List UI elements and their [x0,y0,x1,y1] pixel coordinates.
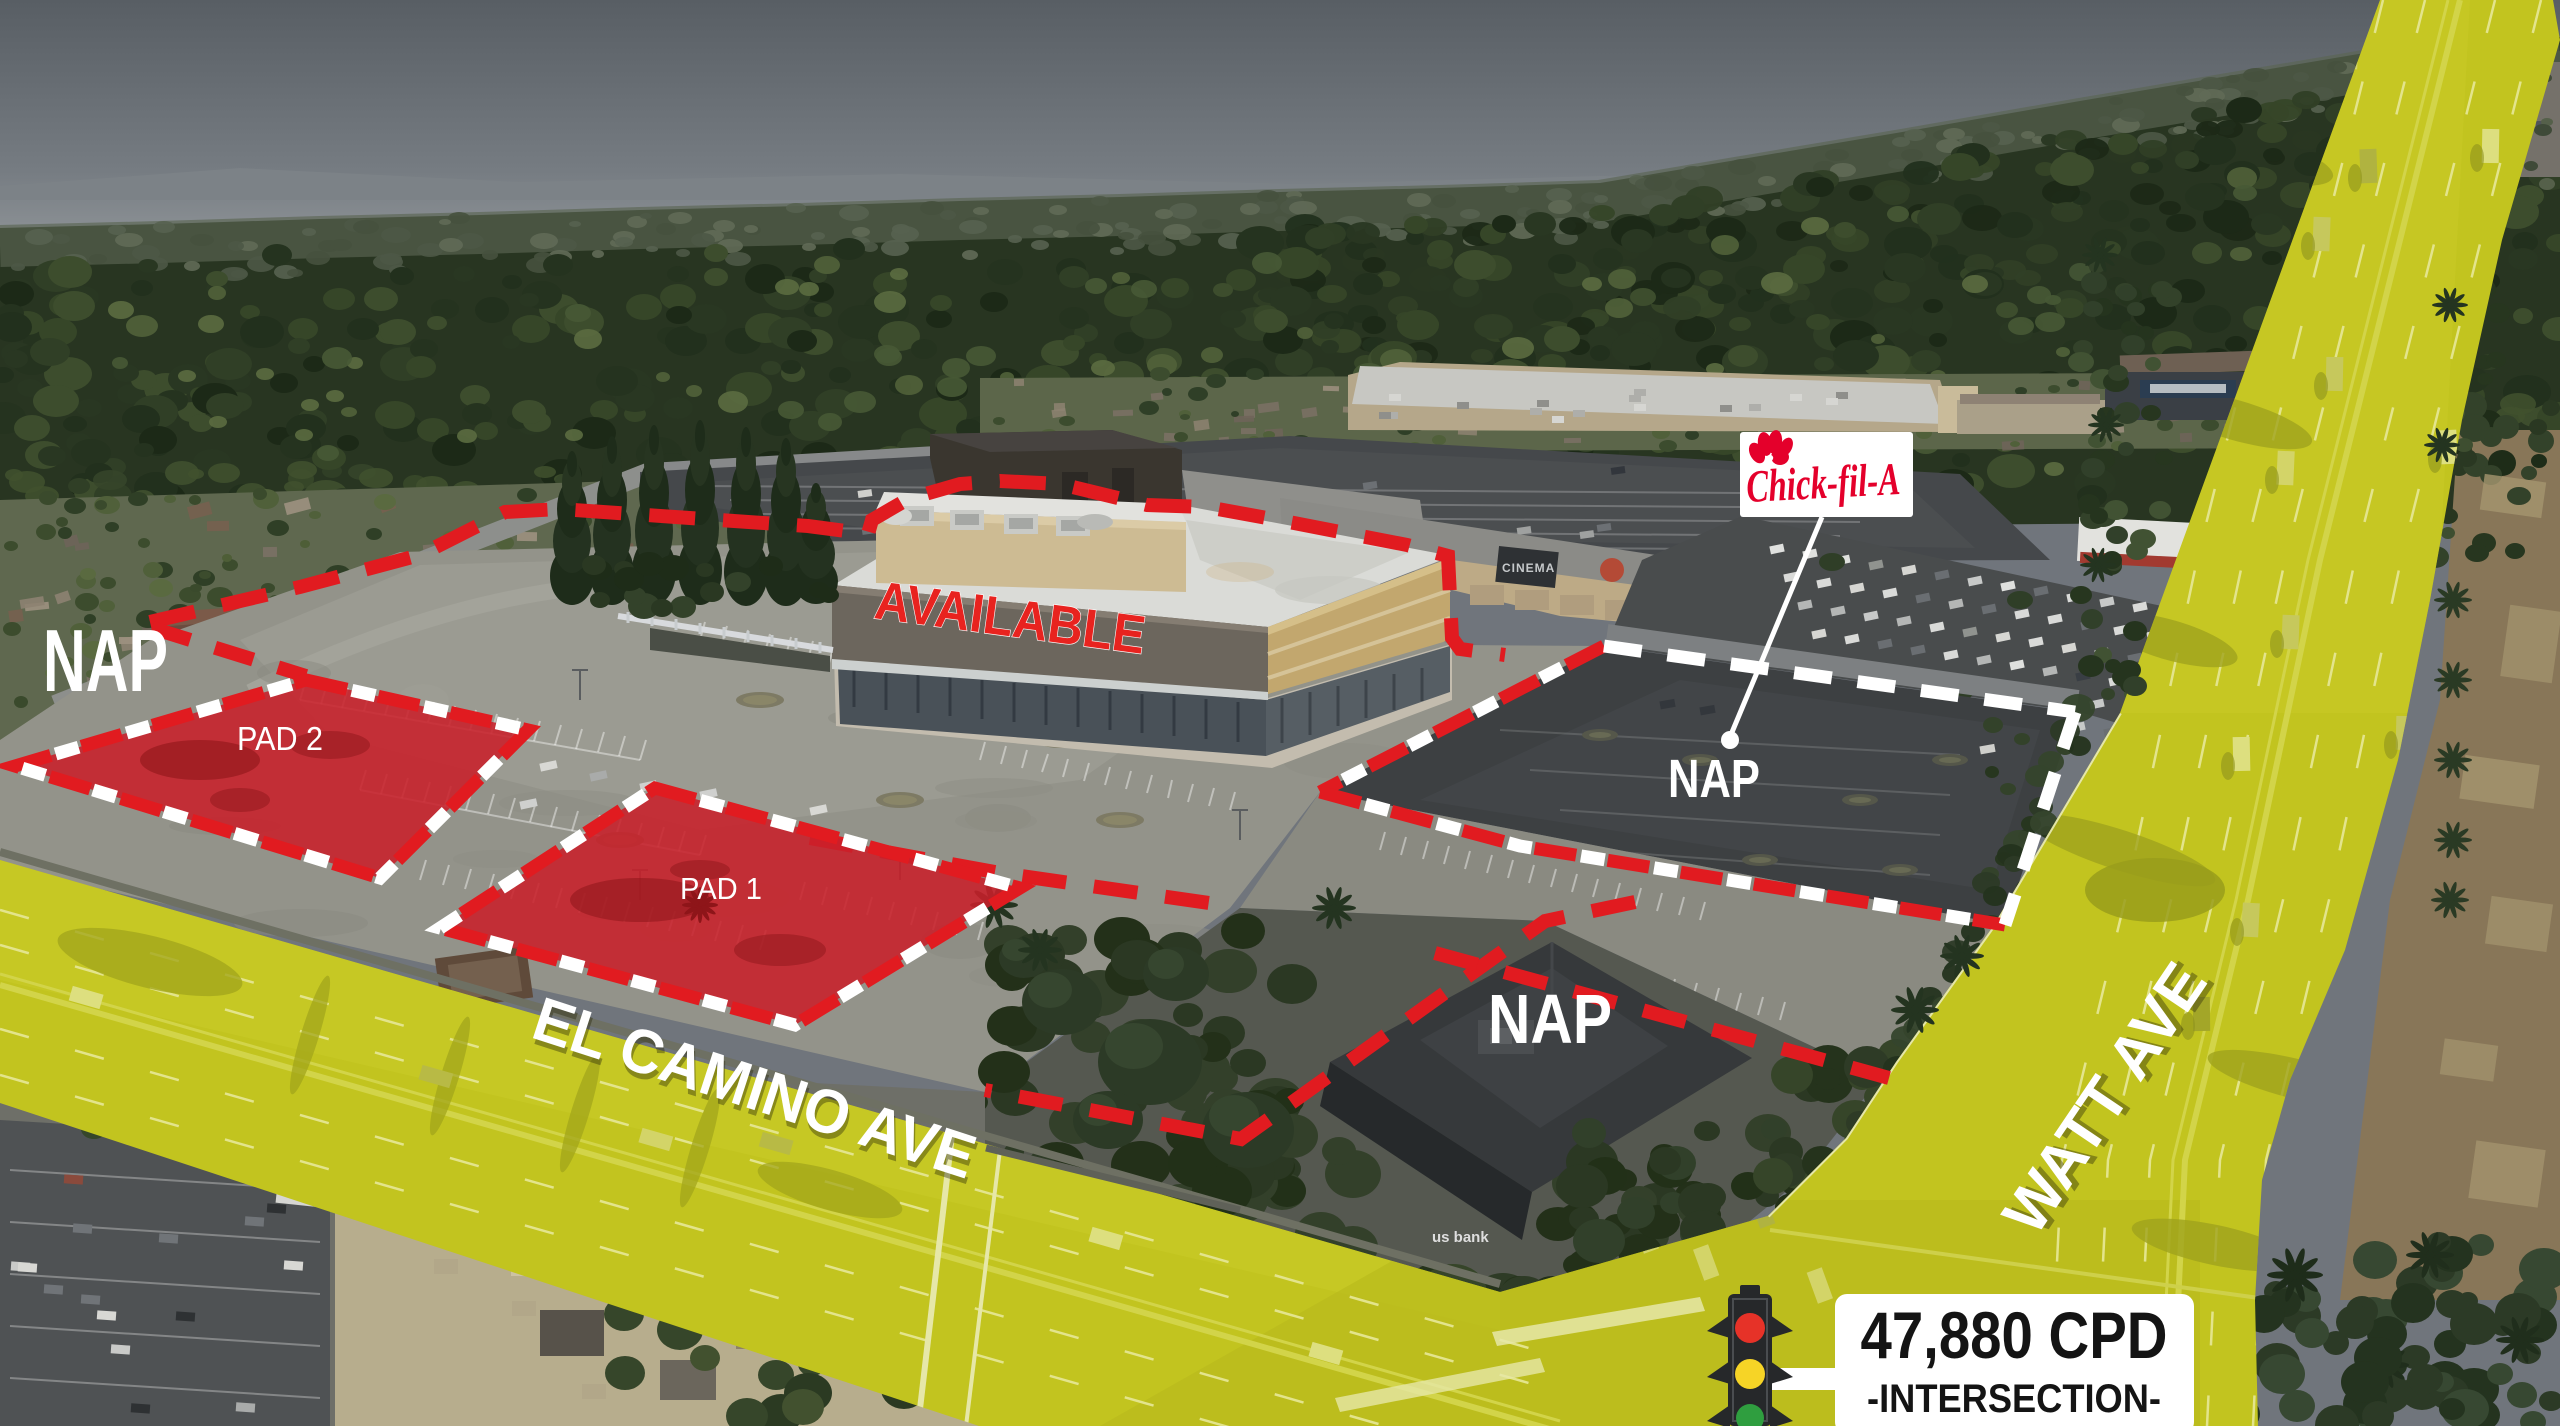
svg-text:CINEMA: CINEMA [1502,561,1555,575]
svg-text:47,880 CPD: 47,880 CPD [1861,1298,2168,1372]
svg-text:us bank: us bank [1432,1229,1489,1246]
svg-text:PAD 2: PAD 2 [237,720,323,757]
svg-text:Chick-fil-A: Chick-fil-A [1745,453,1901,512]
svg-text:-INTERSECTION-: -INTERSECTION- [1867,1377,2161,1421]
svg-text:NAP: NAP [1668,749,1760,809]
svg-text:PAD 1: PAD 1 [680,871,762,906]
svg-text:NAP: NAP [1488,980,1612,1058]
svg-text:NAP: NAP [43,611,168,710]
